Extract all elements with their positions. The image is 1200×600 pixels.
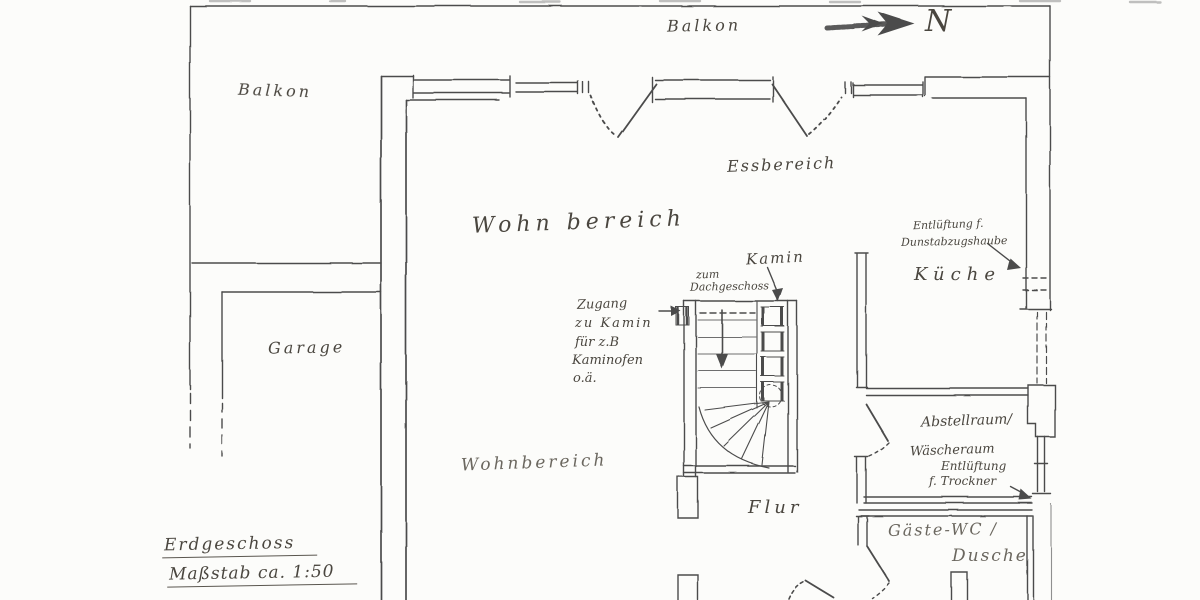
label-vent-trockner-1: Entlüftung bbox=[941, 460, 1006, 473]
interior-wall-kueche-abstellraum bbox=[866, 388, 1028, 395]
exterior-wall-north bbox=[413, 75, 1050, 137]
exterior-wall-west bbox=[381, 76, 499, 600]
label-stair-dest-1: zum bbox=[696, 269, 720, 281]
label-waescheraum: Wäscheraum bbox=[910, 443, 995, 460]
label-abstellraum: Abstellraum/ bbox=[921, 412, 1013, 430]
label-zugang-2: zu Kamin bbox=[575, 317, 653, 331]
label-vent-trockner-2: f. Trockner bbox=[929, 475, 996, 488]
title-scale: Maßstab ca. 1:50 bbox=[167, 563, 357, 584]
interior-wall-middle bbox=[855, 253, 889, 503]
north-arrow-icon bbox=[827, 12, 915, 36]
kamin-blocks bbox=[761, 307, 784, 401]
label-stair-dest-2: Dachgeschoss bbox=[690, 280, 769, 293]
label-zugang-3: für z.B bbox=[575, 336, 619, 350]
staircase bbox=[676, 301, 797, 600]
label-zugang-1: Zugang bbox=[577, 297, 628, 312]
garage-walls bbox=[222, 292, 381, 456]
label-gaeste-wc: Gäste-WC / bbox=[888, 521, 998, 540]
label-balkon-left: Balkon bbox=[238, 82, 313, 101]
label-balkon-top: Balkon bbox=[667, 17, 741, 35]
label-essbereich: Essbereich bbox=[727, 155, 837, 176]
label-garage: Garage bbox=[268, 339, 346, 357]
label-dusche: Dusche bbox=[952, 548, 1028, 566]
floor-plan-page: Balkon N Balkon Essbereich Wohn bereich … bbox=[0, 0, 1200, 600]
scan-edge-marks bbox=[210, 1, 1160, 2]
flur-door bbox=[789, 581, 834, 599]
label-kamin: Kamin bbox=[746, 249, 806, 268]
label-zugang-4: Kaminofen bbox=[572, 354, 643, 368]
label-north: N bbox=[925, 6, 951, 38]
label-zugang-5: o.ä. bbox=[573, 372, 597, 386]
label-vent-kueche-1: Entlüftung f. bbox=[913, 218, 984, 232]
label-flur: Flur bbox=[748, 499, 802, 518]
title-scale-text: Maßstab ca. 1:50 bbox=[167, 561, 357, 587]
title-floor-text: Erdgeschoss bbox=[162, 533, 318, 559]
label-vent-kueche-2: Dunstabzugshaube bbox=[901, 235, 1008, 248]
title-floor: Erdgeschoss bbox=[162, 535, 318, 556]
label-kueche: Küche bbox=[914, 266, 1001, 285]
